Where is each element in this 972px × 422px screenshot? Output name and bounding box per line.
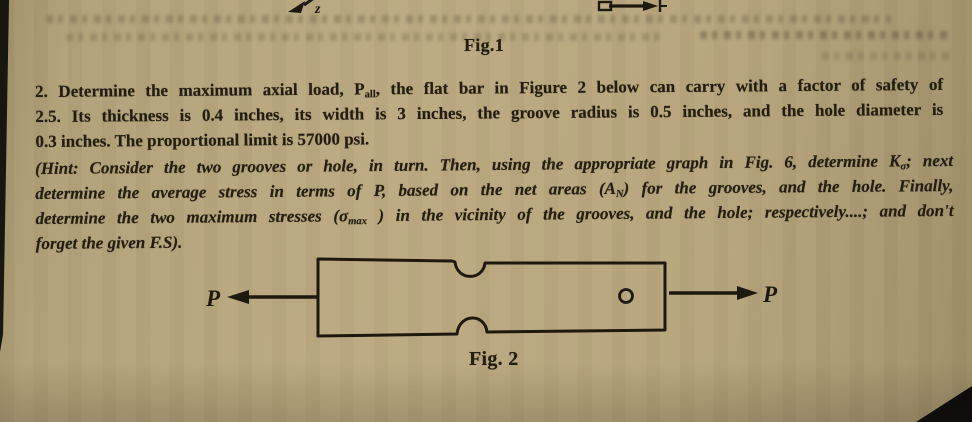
left-load-arrow: [227, 290, 318, 304]
fig1-remnant-rod-arrow: [595, 0, 675, 13]
bleedthrough-text-strip: [46, 15, 891, 23]
hint-line-1-post: ; next: [906, 151, 953, 170]
fig1-caption: Fig.1: [464, 35, 504, 56]
hint-line-3-post: ) in the vicinity of the grooves, and th…: [367, 201, 954, 225]
z-axis-label: z: [314, 2, 321, 14]
page-corner-shadow: [916, 386, 972, 422]
fig2-caption: Fig. 2: [469, 348, 519, 371]
problem-line-1-post: , the flat bar in Figure 2 below can car…: [376, 75, 944, 98]
p-all-subscript: all: [365, 89, 376, 100]
fig1-remnant-z-axis-arrow: z: [285, 0, 341, 14]
flat-bar-outline: [318, 259, 665, 336]
hint-line-3-pre: determine the two maximum stresses (σ: [35, 206, 348, 228]
scanned-page: z Fig.1 2. Determine the maximum axial l…: [0, 0, 972, 422]
right-load-arrow: [669, 286, 758, 300]
right-load-label: P: [762, 282, 778, 307]
sigma-max-subscript: max: [348, 216, 367, 227]
hint-line-2-pre: determine the average stress in terms of…: [35, 179, 616, 203]
bleedthrough-text-strip: [66, 33, 666, 41]
bleedthrough-text-strip: [822, 52, 952, 60]
problem-line-1-pre: 2. Determine the maximum axial load, P: [35, 79, 365, 101]
page-edge-shadow-left: [0, 0, 9, 352]
hint-line-2-post: ) for the grooves, and the hole. Finally…: [623, 176, 953, 198]
hole: [620, 290, 633, 303]
hint-text: (Hint: Consider the two grooves or hole,…: [35, 148, 954, 256]
left-load-label: P: [205, 286, 221, 311]
problem-text: 2. Determine the maximum axial load, Pal…: [35, 72, 944, 154]
bleedthrough-text-strip: [700, 31, 950, 39]
